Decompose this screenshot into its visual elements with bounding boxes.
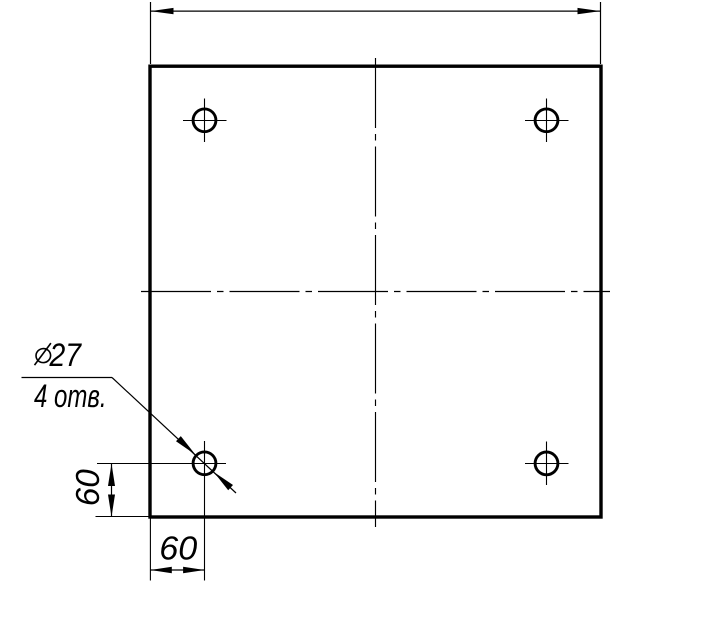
svg-text:60: 60 [69,469,106,507]
svg-text:60: 60 [159,530,198,567]
svg-text:4 отв.: 4 отв. [34,378,107,414]
svg-text:27: 27 [49,337,82,373]
